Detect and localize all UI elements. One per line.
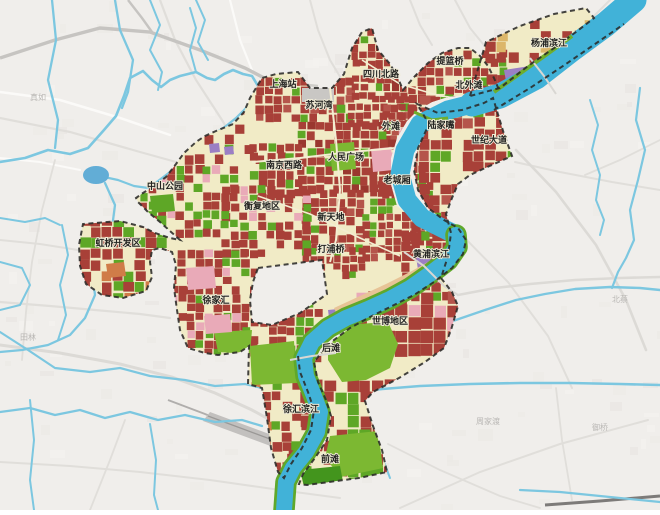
svg-text:北外滩: 北外滩	[455, 79, 482, 90]
svg-text:苏河湾: 苏河湾	[305, 99, 332, 110]
svg-text:周家渡: 周家渡	[476, 416, 500, 426]
svg-text:后滩: 后滩	[322, 342, 340, 353]
svg-text:田林: 田林	[20, 332, 36, 342]
svg-text:上海站: 上海站	[269, 78, 296, 89]
svg-text:提篮桥: 提篮桥	[436, 55, 464, 66]
svg-text:虹桥开发区: 虹桥开发区	[95, 237, 140, 248]
svg-text:老城厢: 老城厢	[382, 174, 410, 185]
svg-text:徐家汇: 徐家汇	[201, 294, 229, 305]
svg-text:徐汇滨江: 徐汇滨江	[282, 403, 319, 414]
svg-text:南京西路: 南京西路	[266, 159, 303, 170]
svg-text:四川北路: 四川北路	[363, 68, 400, 79]
svg-text:衡复地区: 衡复地区	[244, 200, 280, 211]
svg-text:杨浦滨江: 杨浦滨江	[531, 37, 567, 48]
svg-text:御桥: 御桥	[592, 422, 608, 432]
svg-text:外滩: 外滩	[381, 120, 400, 131]
svg-text:世博地区: 世博地区	[372, 315, 408, 326]
svg-text:世纪大道: 世纪大道	[471, 134, 507, 145]
svg-text:新天地: 新天地	[317, 211, 344, 222]
svg-text:人民广场: 人民广场	[327, 151, 364, 162]
svg-text:陆家嘴: 陆家嘴	[427, 119, 454, 130]
svg-text:北蔡: 北蔡	[612, 294, 628, 304]
svg-text:打浦桥: 打浦桥	[317, 243, 345, 254]
svg-text:真如: 真如	[30, 92, 46, 102]
svg-text:中山公园: 中山公园	[147, 180, 183, 191]
svg-text:黄浦滨江: 黄浦滨江	[413, 248, 449, 259]
svg-text:前滩: 前滩	[321, 453, 339, 464]
